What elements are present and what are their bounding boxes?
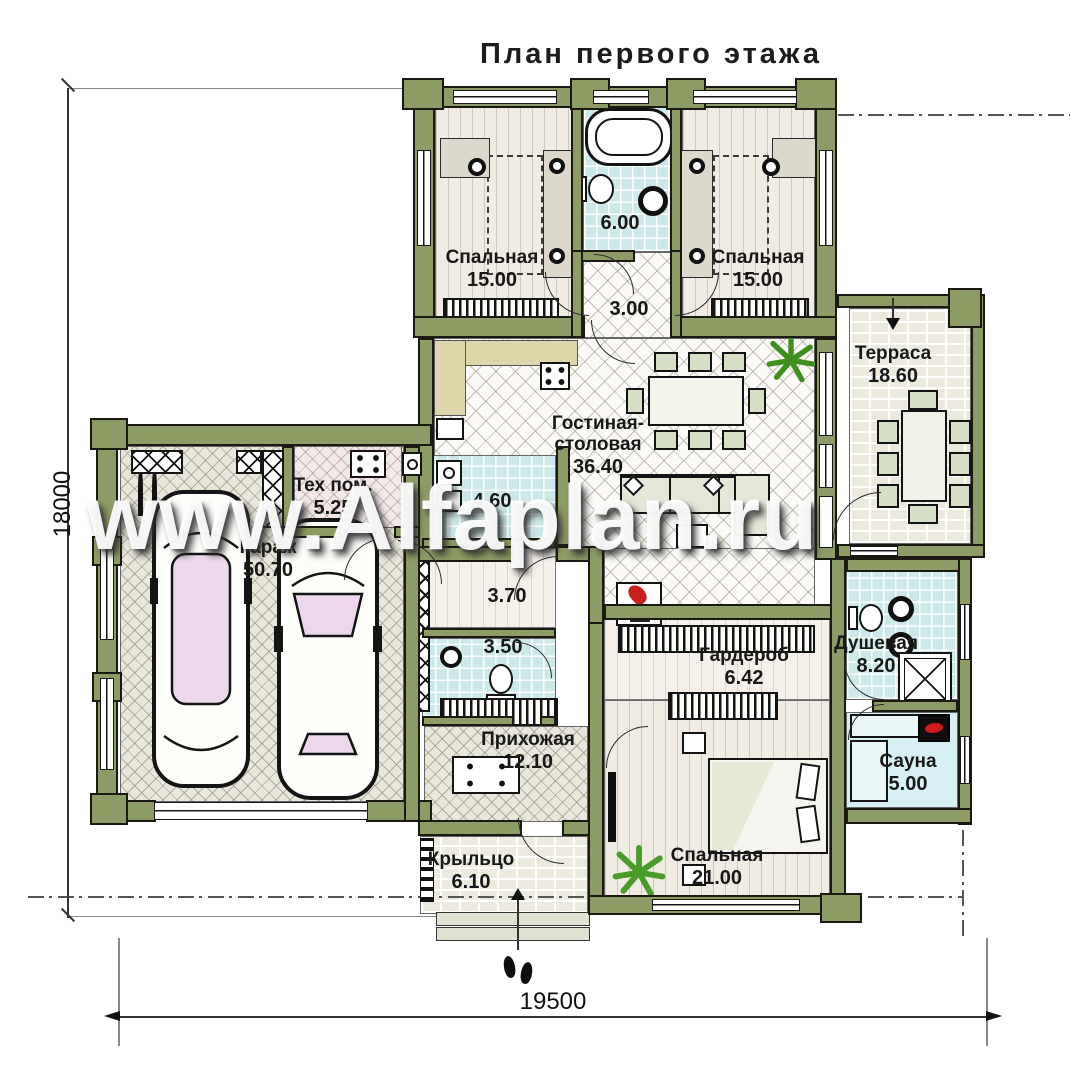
room-area: 3.70 — [488, 585, 527, 607]
garage-door-opening — [154, 802, 368, 820]
dining-chair — [688, 430, 712, 450]
terrace-chair — [877, 452, 899, 476]
room-name: Спальная — [671, 846, 764, 867]
label-sauna: Сауна 5.00 — [848, 752, 968, 795]
dimension-arrow-left — [104, 1011, 120, 1021]
wall-pilaster — [90, 418, 128, 450]
terrace-chair — [908, 504, 938, 524]
window — [100, 678, 114, 770]
extension-line — [68, 916, 436, 917]
label-porch: Крыльцо 6.10 — [411, 850, 531, 893]
room-name: Спальная — [446, 248, 539, 269]
room-name: Спальная — [712, 248, 805, 269]
dining-chair — [748, 388, 766, 414]
extension-line — [986, 938, 988, 1046]
wall-bath-east — [670, 106, 682, 254]
dining-chair — [722, 430, 746, 450]
label-wc: 3.50 — [473, 636, 533, 658]
wall-garage-north — [96, 424, 432, 446]
terrace-table — [901, 410, 947, 502]
toilet-bowl — [588, 174, 614, 204]
bed-blanket — [712, 762, 778, 850]
terrace-chair — [908, 390, 938, 410]
dimension-height: 18000 — [49, 449, 77, 559]
label-bathroom: 6.00 — [590, 212, 650, 234]
window — [819, 352, 833, 436]
room-area: 18.60 — [868, 365, 918, 387]
toilet-bowl — [489, 664, 513, 694]
wall-bedroom-b-east — [830, 558, 846, 915]
dining-chair — [626, 388, 644, 414]
dimension-arrow-right — [986, 1011, 1002, 1021]
room-name: Гостиная- — [552, 414, 644, 435]
room-area: 8.20 — [857, 655, 896, 677]
terrace-chair — [949, 452, 971, 476]
label-corridor-370: 3.70 — [477, 585, 537, 607]
room-name: Крыльцо — [428, 850, 514, 871]
plant-icon — [764, 334, 818, 382]
wall-partition — [422, 716, 514, 726]
wall-shower-north — [846, 558, 972, 572]
wall-porch-north-left — [418, 820, 522, 836]
dining-chair — [654, 352, 678, 372]
room-area: 6.42 — [725, 667, 764, 689]
sauna-stove-flame — [924, 721, 944, 735]
room-area: 21.00 — [692, 867, 742, 889]
dimension-width: 19500 — [508, 988, 598, 1016]
wall-pilaster — [795, 78, 837, 110]
kitchen-counter — [434, 340, 466, 416]
window — [819, 150, 833, 246]
label-hall-top: 3.00 — [599, 298, 659, 320]
wall-pilaster — [90, 793, 128, 825]
window — [693, 90, 797, 104]
terrace-entry-axis — [892, 298, 894, 320]
terrace-entry-arrow-icon — [886, 318, 900, 330]
terrace-exit-opening — [850, 546, 898, 556]
room-name: Прихожая — [481, 730, 575, 751]
wall-terrace-east — [971, 294, 985, 558]
extension-line — [68, 88, 414, 89]
stool — [762, 158, 780, 176]
label-hallway: Прихожая 12.10 — [458, 730, 598, 773]
room-area: 3.00 — [610, 298, 649, 320]
room-area: 15.00 — [467, 269, 517, 291]
terrace-chair — [877, 420, 899, 444]
window — [652, 899, 800, 911]
label-bedroom-topleft: Спальная 15.00 — [432, 248, 552, 291]
window — [960, 604, 970, 660]
wall-top-wing-south-right — [673, 316, 837, 338]
door-arc — [848, 704, 884, 740]
bed-pillow — [689, 158, 705, 174]
label-terrace: Терраса 18.60 — [833, 344, 953, 387]
label-bedroom-topright: Спальная 15.00 — [698, 248, 818, 291]
bed-pillow — [549, 158, 565, 174]
wall-pilaster — [402, 78, 444, 110]
porch-step — [436, 927, 590, 941]
room-name: Терраса — [855, 344, 931, 365]
room-name: столовая — [554, 435, 641, 456]
window — [453, 90, 557, 104]
porch-step — [436, 912, 590, 926]
wall-tv-wardrobe-north — [604, 604, 837, 620]
room-area: 5.00 — [889, 773, 928, 795]
tv — [608, 772, 616, 842]
wardrobe-hatch — [668, 692, 778, 720]
room-area: 12.10 — [503, 751, 553, 773]
room-area: 15.00 — [733, 269, 783, 291]
stove-cooktop — [540, 362, 570, 390]
dresser — [772, 138, 818, 178]
wall-pilaster — [820, 893, 862, 923]
bathtub-inner — [595, 118, 663, 156]
door-opening-terrace — [819, 496, 833, 548]
room-name: Гардероб — [699, 646, 789, 667]
axis-line — [838, 114, 1070, 116]
window — [417, 150, 431, 246]
bathtub — [585, 108, 673, 166]
terrace-chair — [949, 420, 971, 444]
sink — [440, 646, 462, 668]
door-arc — [833, 492, 881, 540]
toilet-tank — [848, 606, 858, 630]
room-name: Сауна — [879, 752, 936, 773]
wall-partition — [540, 716, 556, 726]
toilet-bowl — [859, 604, 883, 632]
sink — [888, 596, 914, 622]
window — [819, 444, 833, 488]
room-area: 6.00 — [601, 212, 640, 234]
room-name: Душевая — [834, 634, 918, 655]
wall-sauna-south — [846, 808, 972, 824]
wall-pilaster — [948, 288, 982, 328]
sauna-stove-icon — [918, 714, 950, 742]
wall-garage-south-right — [366, 800, 432, 822]
room-area: 3.50 — [484, 636, 523, 658]
room-area: 6.10 — [452, 871, 491, 893]
entry-axis — [517, 898, 519, 950]
label-shower-room: Душевая 8.20 — [816, 634, 936, 677]
page-title: План первого этажа — [480, 38, 822, 71]
window — [593, 90, 649, 104]
dining-chair — [688, 352, 712, 372]
footprint-icon — [519, 961, 534, 985]
kitchen-sink — [436, 418, 464, 440]
nightstand — [682, 732, 706, 754]
label-wardrobe: Гардероб 6.42 — [674, 646, 814, 689]
dimension-line-horizontal — [118, 1016, 988, 1018]
stool — [468, 158, 486, 176]
extension-line — [118, 938, 120, 1046]
wall-bath-west — [571, 106, 583, 254]
footprint-icon — [502, 955, 517, 979]
watermark: www.Alfaplan.ru — [86, 466, 818, 571]
wall-shower-sauna — [872, 700, 958, 712]
floor-plan-canvas: План первого этажа — [0, 0, 1080, 1080]
wall-top-wing-south-left — [413, 316, 585, 338]
terrace-chair — [949, 484, 971, 508]
label-bedroom-bottom: Спальная 21.00 — [647, 846, 787, 889]
dining-chair — [722, 352, 746, 372]
